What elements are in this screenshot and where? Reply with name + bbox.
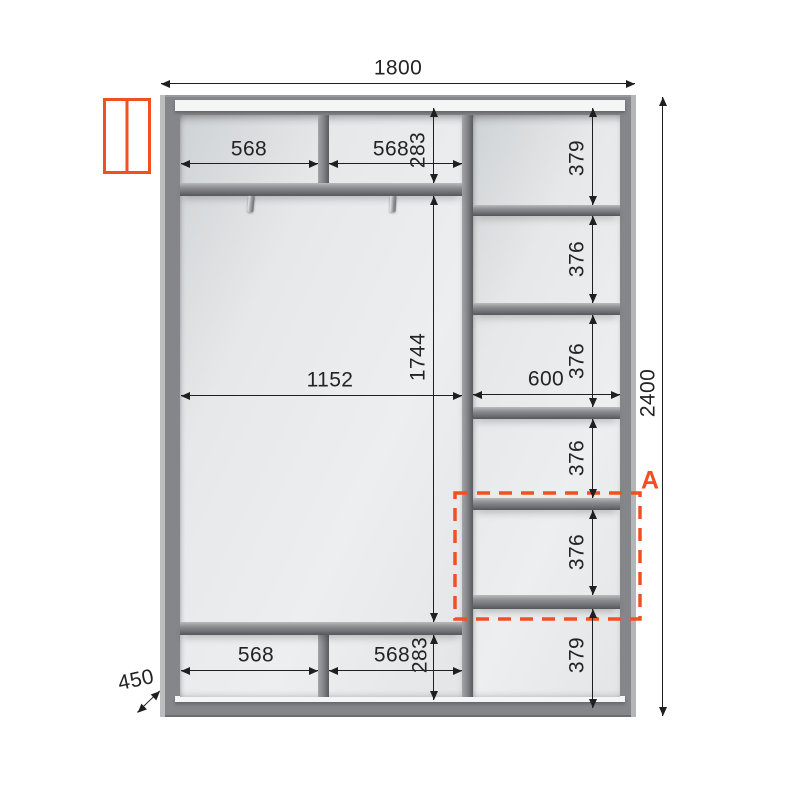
dim-label-column-seg-6: 379 xyxy=(567,637,588,673)
dim-label-overall-width: 1800 xyxy=(374,58,422,79)
dim-line-interior-height xyxy=(433,196,434,622)
dim-line-top-height xyxy=(433,108,434,183)
dim-line-column-seg-6 xyxy=(592,609,593,708)
dim-line-top-shelf-right xyxy=(329,163,462,164)
dim-label-interior-height: 1744 xyxy=(408,333,429,381)
dim-line-column-width xyxy=(473,394,620,395)
dim-line-overall-height xyxy=(662,97,663,716)
dim-line-interior-width xyxy=(181,395,462,396)
dim-label-top-height: 283 xyxy=(408,132,429,168)
dim-label-column-seg-5: 376 xyxy=(567,534,588,570)
dim-line-bottom-shelf-left xyxy=(181,670,318,671)
section-a-label: A xyxy=(641,467,659,496)
dim-line-column-seg-5 xyxy=(592,510,593,595)
dim-label-column-seg-2: 376 xyxy=(567,241,588,277)
dim-line-column-seg-1 xyxy=(592,108,593,205)
dim-label-column-seg-3: 376 xyxy=(567,343,588,379)
dim-line-column-seg-2 xyxy=(592,216,593,303)
dim-line-bottom-shelf-right xyxy=(329,670,462,671)
drawing-canvas: A 1800 2400 450 568 568 283 1152 1744 60… xyxy=(0,0,800,800)
dim-label-interior-width: 1152 xyxy=(307,370,354,391)
dim-line-top-shelf-left xyxy=(181,163,318,164)
dim-line-bottom-height xyxy=(433,635,434,700)
dim-label-column-width: 600 xyxy=(528,369,564,390)
dim-label-bottom-height: 283 xyxy=(410,637,431,673)
dim-line-column-seg-3 xyxy=(592,315,593,407)
dim-line-column-seg-4 xyxy=(592,419,593,498)
dim-line-overall-width xyxy=(161,83,635,84)
dim-label-column-seg-1: 379 xyxy=(567,140,588,176)
dim-label-overall-height: 2400 xyxy=(638,369,659,417)
dim-label-top-shelf-right: 568 xyxy=(373,139,409,160)
dim-label-bottom-shelf-left: 568 xyxy=(238,645,274,666)
dim-label-top-shelf-left: 568 xyxy=(231,139,267,160)
dim-label-column-seg-4: 376 xyxy=(567,440,588,476)
dim-label-bottom-shelf-right: 568 xyxy=(374,645,410,666)
